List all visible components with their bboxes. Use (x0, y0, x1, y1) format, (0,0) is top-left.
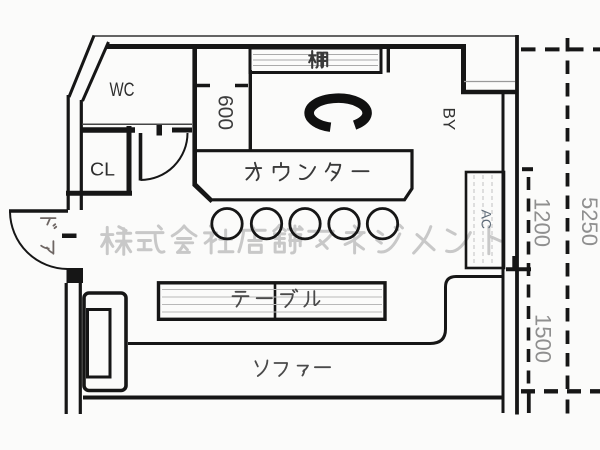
svg-text:WC: WC (110, 80, 135, 101)
svg-text:BY: BY (440, 108, 459, 131)
svg-text:1200: 1200 (530, 198, 555, 247)
svg-text:AC: AC (479, 210, 495, 229)
svg-text:1500: 1500 (531, 314, 556, 363)
svg-text:5250: 5250 (577, 197, 600, 246)
svg-text:CL: CL (90, 159, 115, 180)
svg-text:600: 600 (214, 95, 237, 130)
